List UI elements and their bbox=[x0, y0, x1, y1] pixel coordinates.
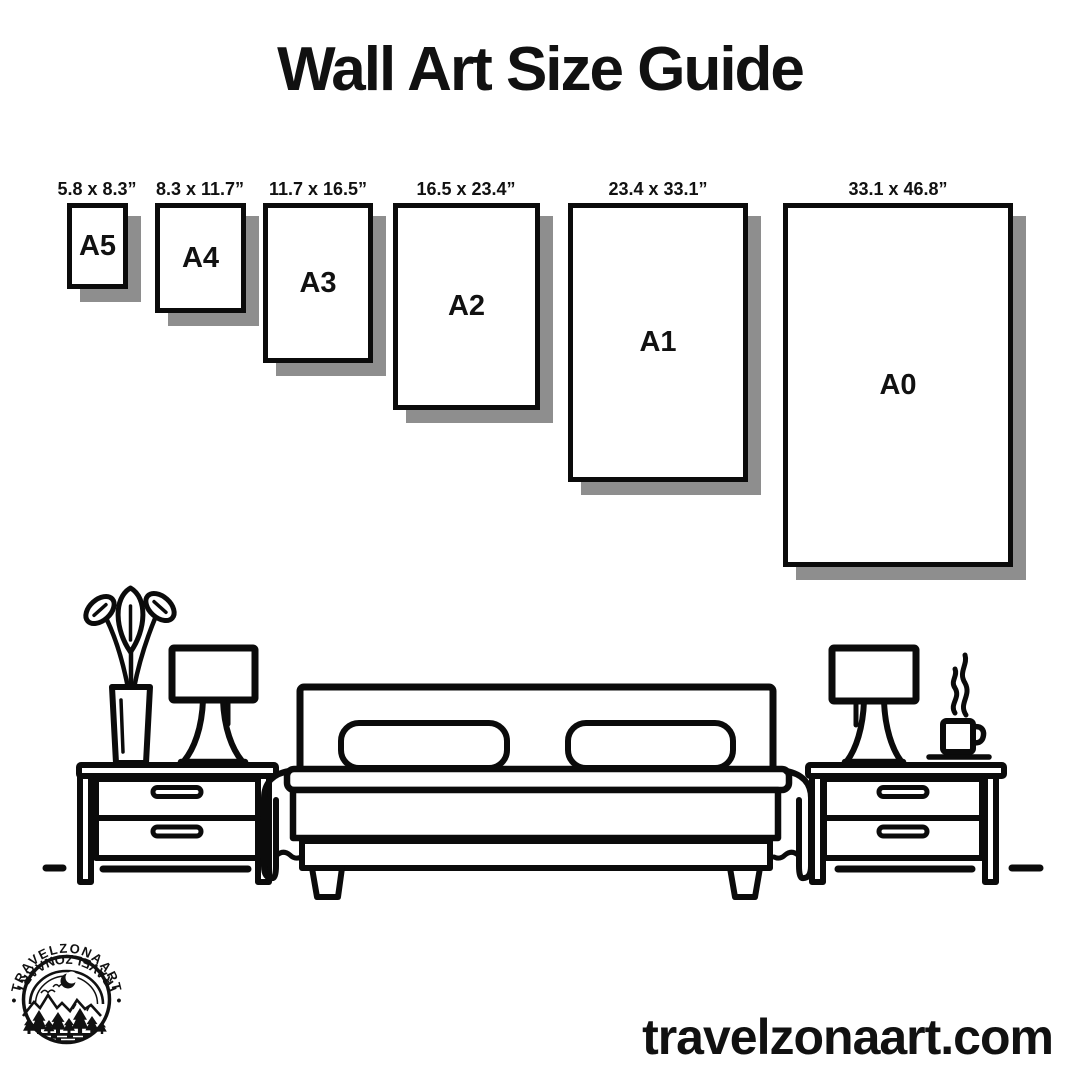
bed-icon bbox=[264, 687, 811, 897]
size-dimensions-a0: 33.1 x 46.8” bbox=[823, 179, 973, 200]
size-label-a4: A4 bbox=[182, 242, 219, 275]
pillow-right-icon bbox=[568, 723, 733, 768]
leaf-left-icon bbox=[81, 591, 120, 629]
size-card-a1: A1 bbox=[568, 203, 748, 482]
bed-leg-left bbox=[312, 868, 342, 897]
size-card-a0: A0 bbox=[783, 203, 1013, 567]
nightstand-left-icon bbox=[79, 765, 276, 882]
bed-leg-right bbox=[730, 868, 760, 897]
bed-rail bbox=[302, 841, 770, 868]
nightstand-right-icon bbox=[808, 765, 1004, 882]
bird-icon bbox=[41, 990, 55, 993]
size-dimensions-a2: 16.5 x 23.4” bbox=[391, 179, 541, 200]
leaf-right-icon bbox=[141, 588, 180, 626]
size-dimensions-a1: 23.4 x 33.1” bbox=[583, 179, 733, 200]
size-label-a5: A5 bbox=[79, 230, 116, 263]
size-card-a5: A5 bbox=[67, 203, 128, 289]
size-label-a0: A0 bbox=[879, 369, 916, 402]
size-label-a2: A2 bbox=[448, 290, 485, 323]
bedroom-illustration-icon bbox=[0, 580, 1080, 920]
page-title: Wall Art Size Guide bbox=[0, 34, 1080, 105]
size-card-a4: A4 bbox=[155, 203, 246, 313]
logo-separator-dot: • bbox=[117, 992, 122, 1008]
size-guide-infographic: Wall Art Size Guide 5.8 x 8.3” 8.3 x 11.… bbox=[0, 0, 1080, 1080]
table-lamp-left-icon bbox=[172, 648, 255, 762]
mountains-icon bbox=[23, 995, 101, 1016]
website-url: travelzonaart.com bbox=[642, 1008, 1053, 1066]
vase-icon bbox=[112, 687, 150, 763]
pillow-left-icon bbox=[341, 723, 507, 768]
logo-separator-dot: • bbox=[12, 992, 17, 1008]
coffee-cup-icon bbox=[929, 655, 989, 757]
steam-icon bbox=[962, 655, 967, 715]
steam-icon bbox=[953, 669, 956, 713]
brand-logo: TRAVELZONAART TRAVELZONAART • • bbox=[1, 934, 132, 1065]
size-label-a1: A1 bbox=[639, 326, 676, 359]
size-card-a3: A3 bbox=[263, 203, 373, 363]
size-dimensions-a3: 11.7 x 16.5” bbox=[243, 179, 393, 200]
size-label-a3: A3 bbox=[299, 267, 336, 300]
mattress-base bbox=[293, 790, 778, 838]
table-lamp-right-icon bbox=[832, 648, 916, 762]
size-card-a2: A2 bbox=[393, 203, 540, 410]
plant-vase-icon bbox=[81, 588, 180, 763]
moon-icon bbox=[61, 972, 78, 989]
